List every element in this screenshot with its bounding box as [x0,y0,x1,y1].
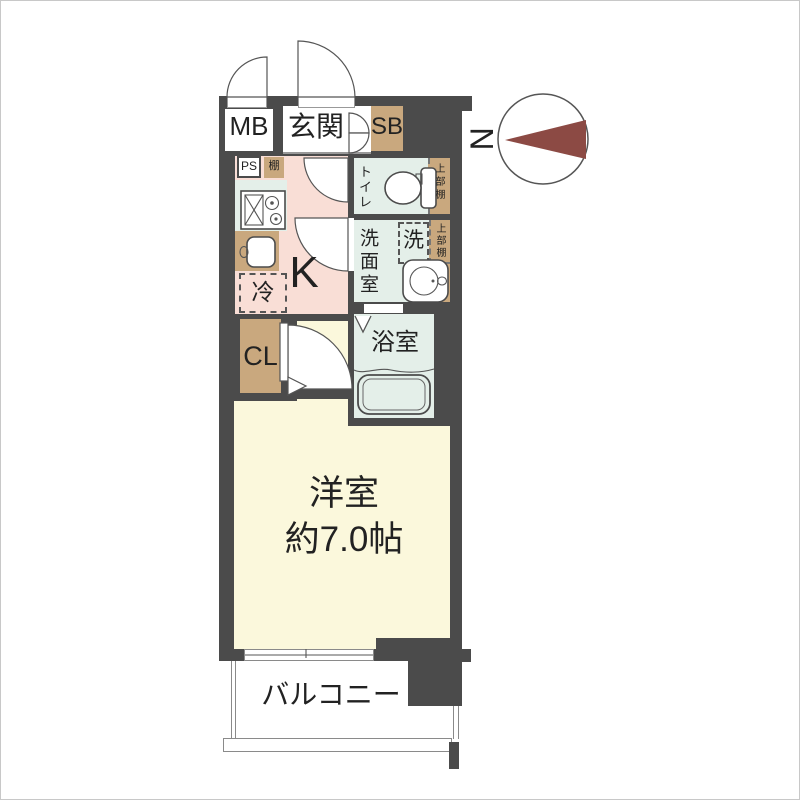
label-shelf: 棚 [264,161,284,173]
label-washroom-upper-shelf: 上部棚 [434,223,444,259]
compass-circle [498,94,588,184]
label-western-room: 洋室 [239,476,449,513]
label-closet: CL [240,342,281,370]
entrance-door-arc [298,41,355,97]
stove-counter [235,180,287,231]
compass [498,94,588,184]
label-shoe-box: SB [371,114,403,139]
label-washroom: 洗面室 [358,228,377,297]
label-mb: MB [225,113,273,140]
label-washing-machine: 洗 [398,230,429,252]
washroom-doorway [348,218,354,271]
wall-stub-right [462,649,471,662]
label-western-room-size: 約7.0帖 [239,522,449,559]
bathroom-doorway [364,304,403,313]
label-balcony: バルコニー [231,680,431,709]
balcony-window [244,649,374,661]
compass-north-label: N [466,117,500,161]
label-refrigerator: 冷 [239,280,287,304]
label-kitchen: K [281,250,327,296]
mb-door-arc [227,57,267,97]
balcony-front-rail [223,738,452,752]
label-entrance: 玄関 [285,112,347,141]
basin-counter [429,264,450,302]
label-toilet-upper-shelf: 上部棚 [433,163,443,202]
label-pipe-space: PS [237,160,261,173]
sink-counter [235,231,279,271]
balcony-right-rail [453,706,459,739]
wall-stub-top-right [462,96,472,111]
floor-plan: MB 玄関 SB PS 棚 トイレ 上部棚 洗面室 洗 上部棚 冷 K CL 浴… [0,0,800,800]
entrance-doorway [298,96,355,108]
label-bathroom: 浴室 [356,330,434,355]
label-toilet: トイレ [358,165,371,210]
compass-needle-icon [505,120,586,159]
wall-under-main-door [288,389,354,399]
mb-doorway [227,96,267,108]
balcony-wall-stub [449,742,459,769]
